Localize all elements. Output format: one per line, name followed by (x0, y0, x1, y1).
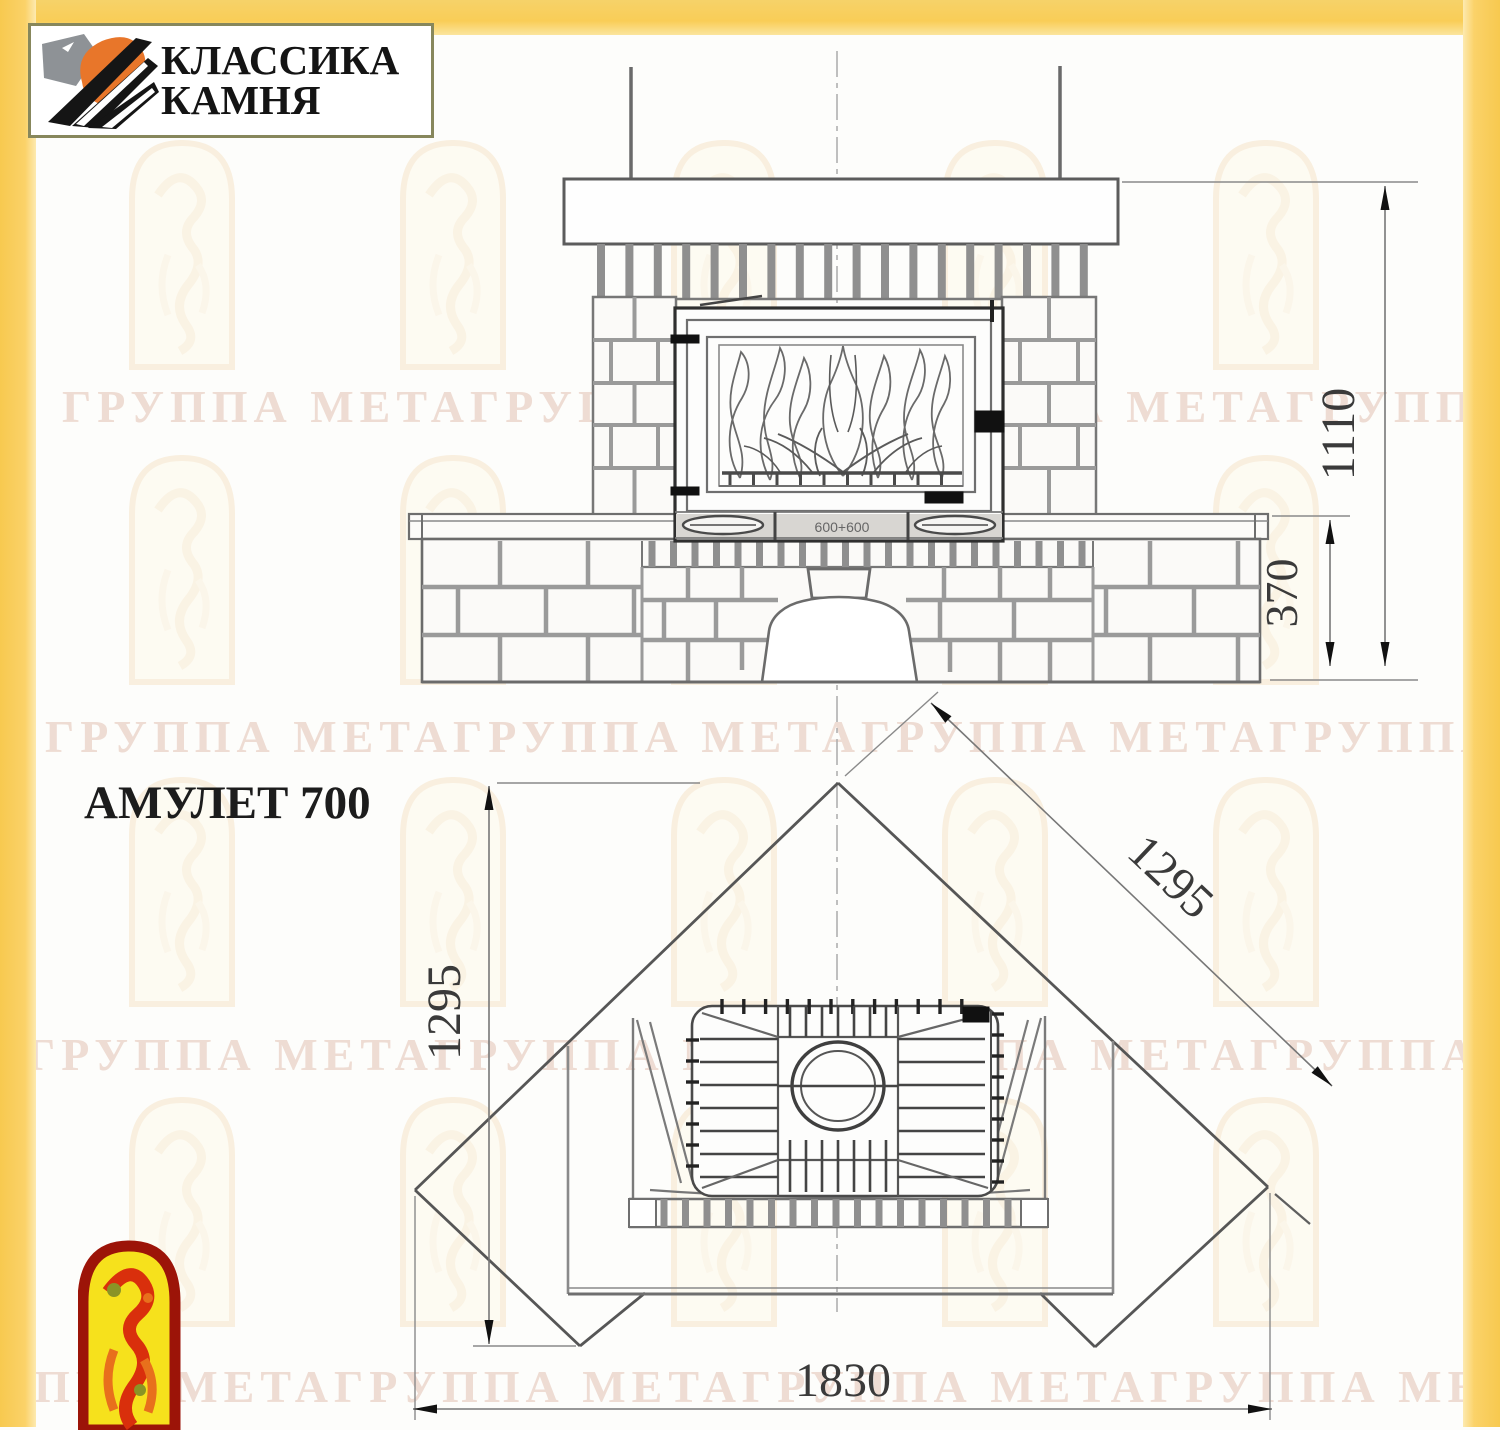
svg-text:1110: 1110 (1312, 388, 1365, 480)
svg-text:600+600: 600+600 (815, 519, 870, 535)
svg-text:370: 370 (1256, 559, 1307, 628)
svg-text:1830: 1830 (795, 1354, 891, 1407)
svg-text:1295: 1295 (1118, 824, 1224, 929)
svg-text:1295: 1295 (418, 964, 471, 1060)
